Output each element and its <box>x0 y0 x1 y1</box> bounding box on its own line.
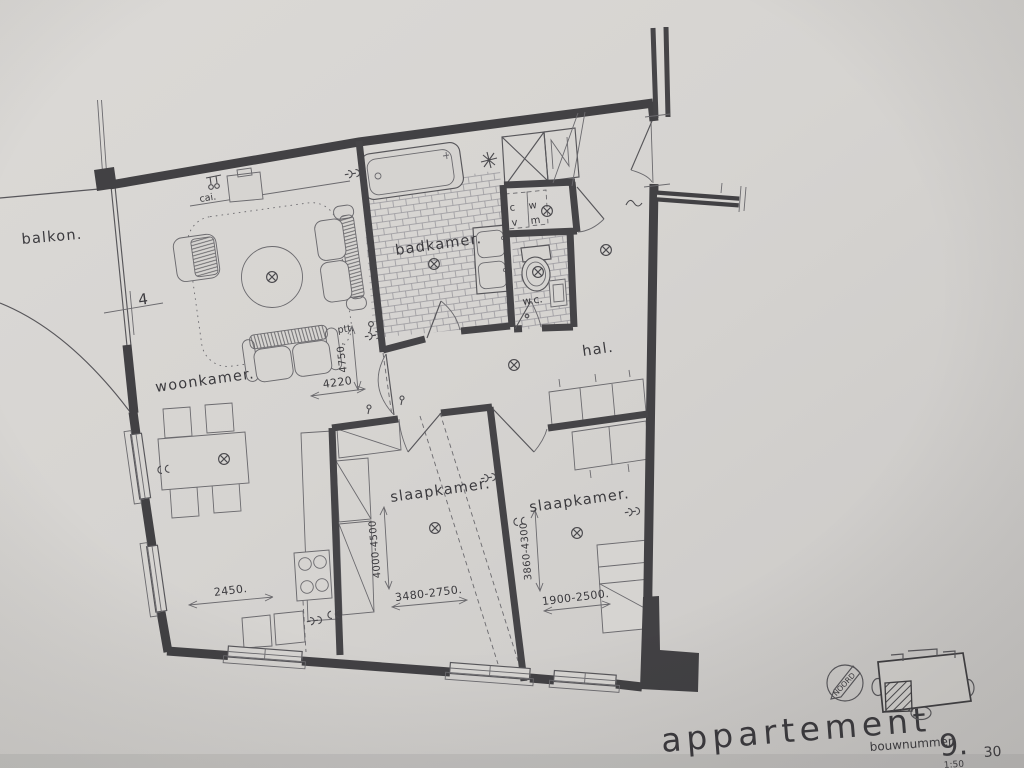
sheet-number: 30 <box>983 744 1002 761</box>
floorplan-drawing: 4 <box>0 0 1024 768</box>
paper-bottom-shadow <box>0 754 1024 768</box>
hand-basin <box>549 279 567 307</box>
key-plan-apartment-location <box>885 681 912 712</box>
scale-label: 1:50 <box>944 760 965 768</box>
armchair <box>172 233 221 283</box>
photographed-floorplan-sheet: 4 <box>0 0 1024 768</box>
paper-background <box>0 0 1024 768</box>
annotation-ptt: ptt. <box>337 323 355 336</box>
bouwnummer-value: 9. <box>938 727 969 764</box>
wm-label-line2: m <box>530 215 541 227</box>
wm-label-line1: w <box>528 200 537 212</box>
